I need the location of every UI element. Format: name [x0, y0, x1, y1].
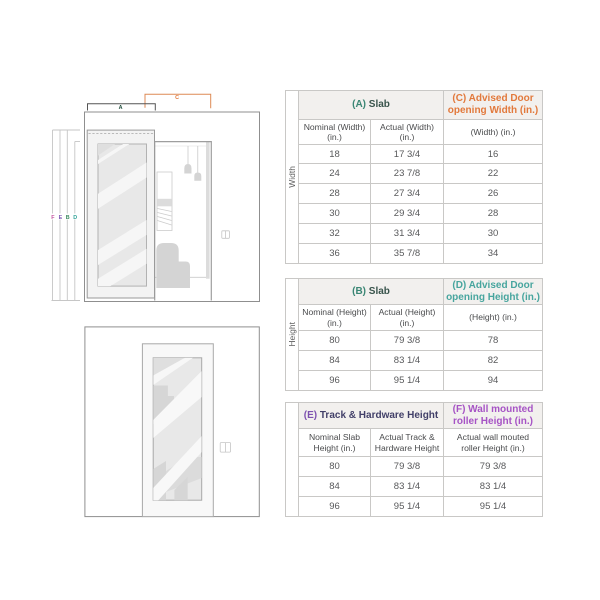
svg-text:E: E: [59, 215, 63, 221]
svg-text:D: D: [73, 215, 77, 221]
svg-text:A: A: [119, 105, 123, 111]
svg-text:B: B: [66, 215, 70, 221]
svg-text:C: C: [175, 95, 179, 101]
